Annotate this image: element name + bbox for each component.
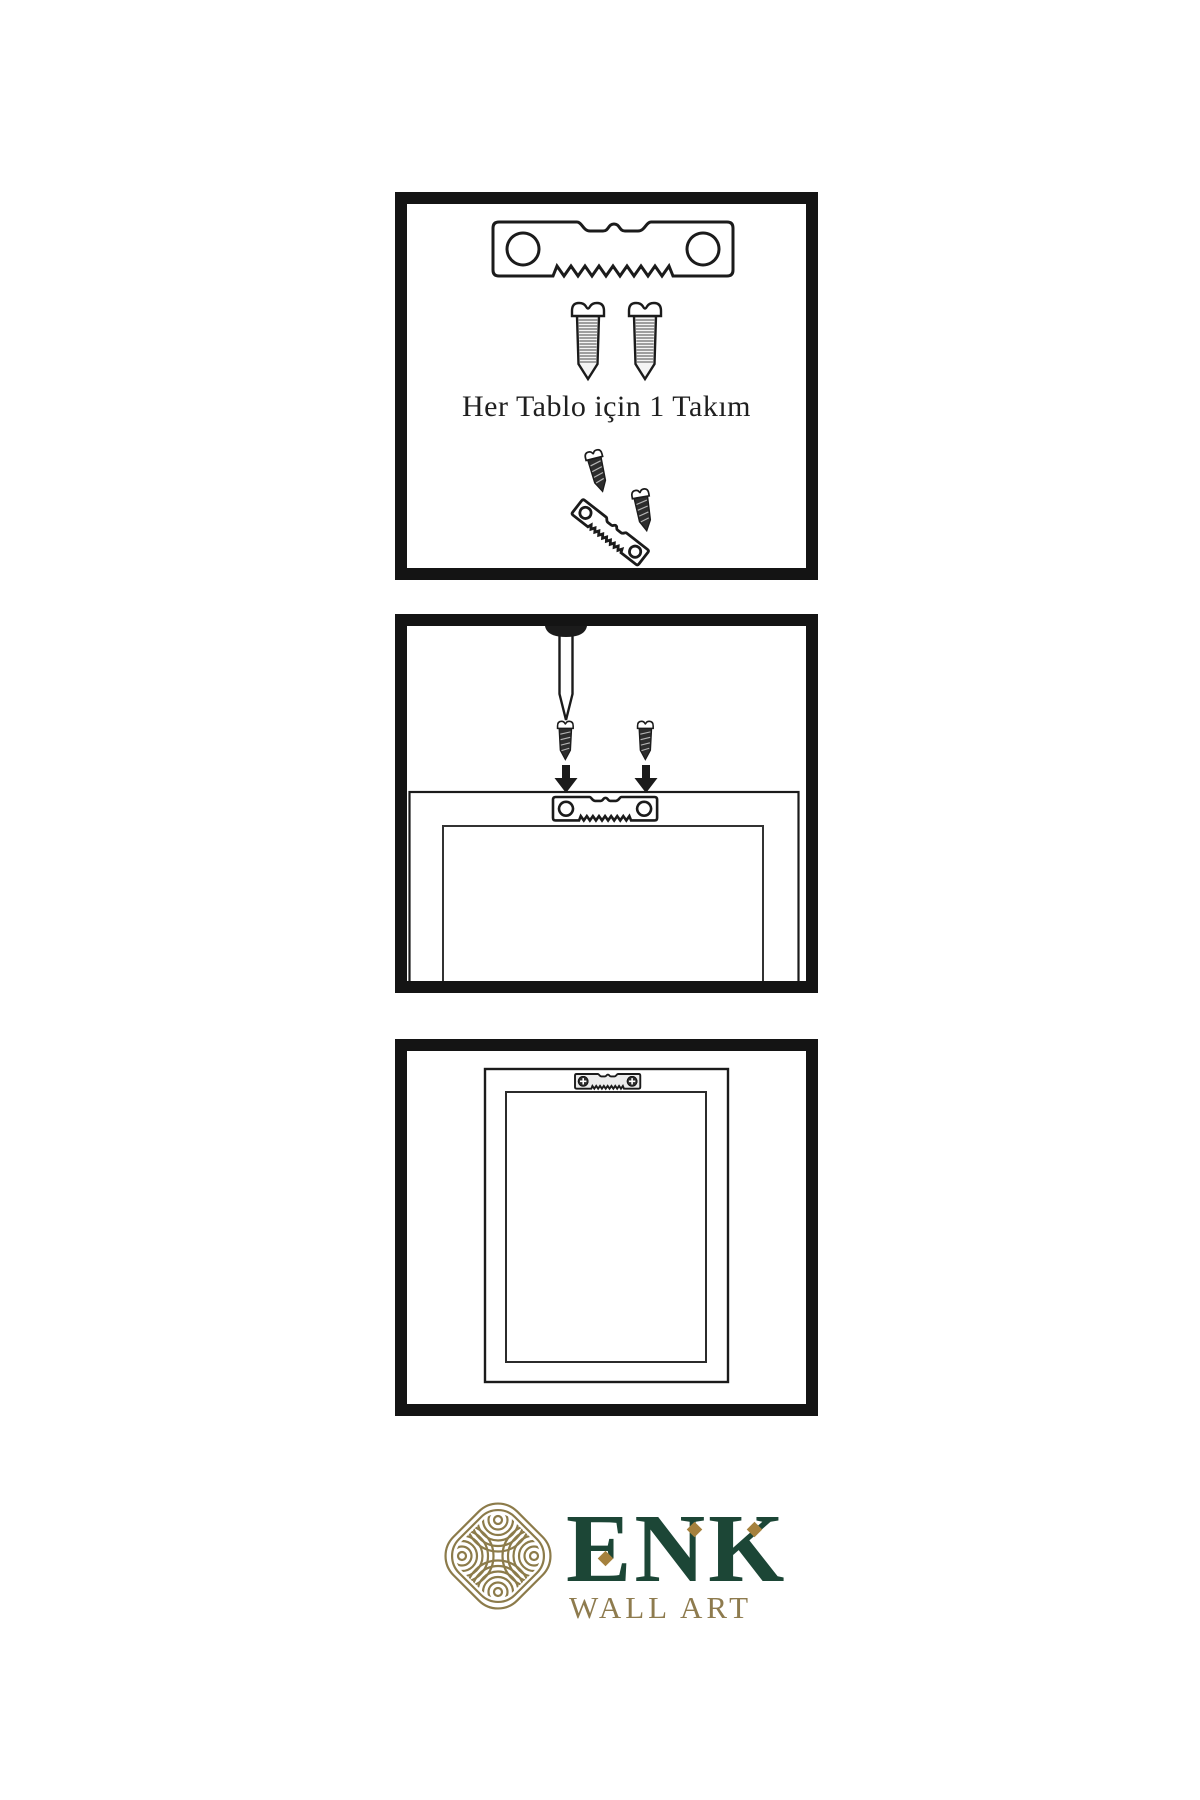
brand-tagline: WALL ART xyxy=(569,1592,752,1623)
kit-illustration xyxy=(407,204,806,568)
mounted-sawtooth-hanger-icon xyxy=(575,1074,640,1089)
mounting-screw-icon xyxy=(572,303,604,379)
panel-hang-frame xyxy=(395,1039,818,1416)
brand-name: ENK xyxy=(566,1500,787,1598)
instruction-sheet: Her Tablo için 1 Takım xyxy=(0,0,1200,1800)
diamond-accent-icon xyxy=(598,1551,614,1567)
mounting-screw-icon xyxy=(558,721,574,759)
mounting-screw-icon xyxy=(638,721,654,759)
wall-nail-icon xyxy=(545,626,587,720)
diamond-accent-icon xyxy=(747,1522,763,1538)
hang-illustration xyxy=(407,1051,806,1404)
kit-caption: Her Tablo için 1 Takım xyxy=(407,390,806,424)
attach-illustration xyxy=(407,626,806,981)
hanging-frame-outline xyxy=(485,1069,728,1382)
diamond-accent-icon xyxy=(687,1522,703,1538)
sawtooth-hanger-icon xyxy=(493,222,733,276)
down-arrow-icon xyxy=(555,765,578,793)
frame-back-outline xyxy=(410,792,799,981)
mounting-screw-icon xyxy=(629,303,661,379)
knot-icon xyxy=(434,1491,562,1625)
screws-into-tilted-hanger-icon xyxy=(571,449,655,566)
panel-kit-contents: Her Tablo için 1 Takım xyxy=(395,192,818,580)
down-arrow-icon xyxy=(635,765,658,793)
panel-attach-hanger xyxy=(395,614,818,993)
